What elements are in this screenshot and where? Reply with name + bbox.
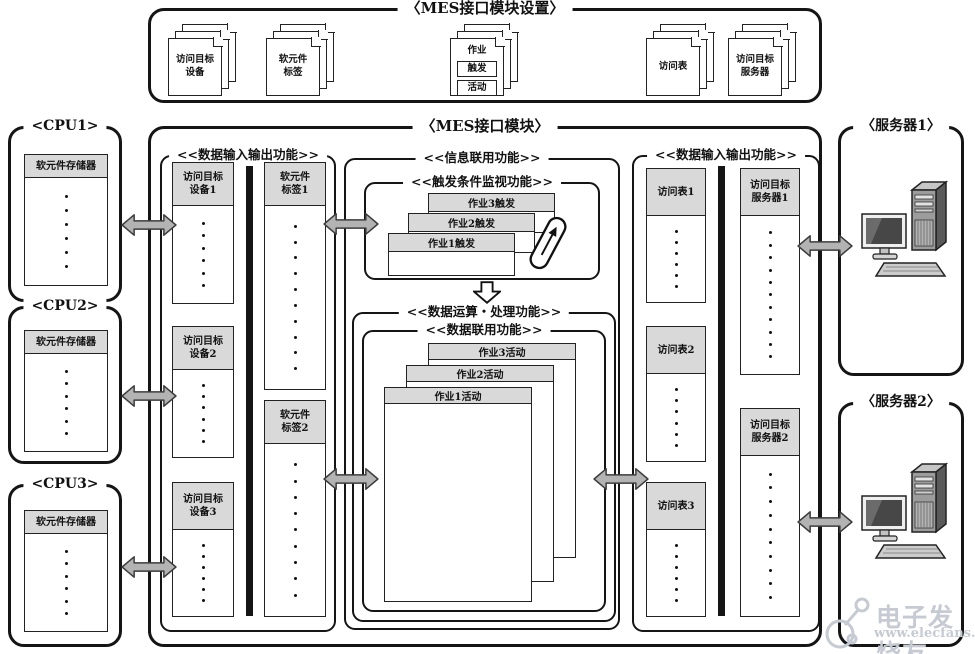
panel-dots	[265, 444, 325, 616]
cpu2-device-memory-panel: 软元件存储器	[24, 330, 108, 452]
panel-dots	[25, 534, 107, 631]
document-icon: 作业 触发 活动	[450, 38, 504, 96]
double-arrow-icon-cpu2	[120, 383, 178, 409]
document-stack-icon-access-device: 访问目标 设备	[168, 24, 236, 98]
double-arrow-icon-server1	[794, 233, 856, 259]
doc-label: 访问表	[647, 39, 699, 95]
action-card-header: 作业2活动	[406, 365, 554, 382]
panel-dots	[173, 370, 233, 457]
watermark-url: www.elecfans.com	[874, 626, 975, 641]
panel-access-device-2: 访问目标 设备2	[172, 326, 234, 458]
panel-dots	[173, 530, 233, 616]
info-linkage-title: <<信息联用功能>>	[416, 151, 549, 165]
panel-dots	[741, 216, 799, 374]
panel-access-table-3: 访问表3	[646, 482, 706, 617]
document-icon: 软元件 标签	[266, 38, 320, 96]
document-stack-icon-job: 作业 触发 活动	[450, 24, 518, 98]
panel-access-device-1: 访问目标 设备1	[172, 162, 234, 304]
cpu1-title: <CPU1>	[23, 119, 106, 134]
job-card-body	[388, 252, 515, 276]
panel-header: 访问表1	[647, 169, 705, 216]
panel-dots	[25, 178, 107, 285]
panel-header: 访问目标 设备1	[173, 163, 233, 206]
right-data-io-title: <<数据输入输出功能>>	[647, 148, 805, 162]
panel-header: 访问目标 服务器1	[741, 169, 799, 216]
document-icon: 访问目标 设备	[168, 38, 222, 96]
panel-header: 访问表2	[647, 327, 705, 374]
cpu3-title: <CPU3>	[23, 477, 106, 492]
doc-label: 访问目标 设备	[169, 39, 221, 95]
double-arrow-icon-datalink-to-io	[592, 466, 650, 492]
double-arrow-icon-io-to-datalink	[322, 466, 380, 492]
cpu3-device-memory-panel: 软元件存储器	[24, 510, 108, 632]
panel-header: 软元件存储器	[25, 331, 107, 354]
panel-device-tag-2: 软元件 标签2	[264, 400, 326, 617]
computer-icon	[856, 462, 948, 562]
double-arrow-icon-io-to-trigger	[322, 211, 380, 237]
job-card-header: 作业3触发	[428, 193, 555, 212]
job-card-header: 作业1触发	[388, 233, 515, 252]
panel-header: 软元件 标签2	[265, 401, 325, 444]
data-linkage-title: <<数据联用功能>>	[418, 323, 551, 337]
trigger-monitor-title: <<触发条件监视功能>>	[403, 175, 561, 189]
job1-trigger-card: 作业1触发	[388, 233, 515, 276]
cpu1-device-memory-panel: 软元件存储器	[24, 154, 108, 286]
panel-header: 访问目标 设备2	[173, 327, 233, 370]
left-data-io-title: <<数据输入输出功能>>	[169, 148, 327, 162]
panel-dots	[647, 530, 705, 616]
panel-header: 访问目标 设备3	[173, 483, 233, 530]
job-card-header: 作业2触发	[408, 213, 535, 232]
panel-access-table-1: 访问表1	[646, 168, 706, 303]
document-stack-icon-access-server: 访问目标 服务器	[728, 24, 796, 98]
document-icon: 访问表	[646, 38, 700, 96]
doc-job-title: 作业	[467, 45, 486, 58]
panel-dots	[25, 354, 107, 451]
doc-label: 访问目标 服务器	[729, 39, 781, 95]
doc-label: 作业 触发 活动	[451, 39, 503, 95]
panel-header: 访问目标 服务器2	[741, 409, 799, 456]
double-arrow-icon-cpu1	[120, 212, 178, 238]
document-icon: 访问目标 服务器	[728, 38, 782, 96]
mes-module-title: 〈MES接口模块〉	[413, 118, 558, 135]
panel-dots	[265, 206, 325, 389]
double-arrow-icon-server2	[794, 509, 856, 535]
action-card-body	[384, 404, 532, 602]
doc-label: 软元件 标签	[267, 39, 319, 95]
panel-access-target-server-2: 访问目标 服务器2	[740, 408, 800, 617]
mes-settings-title: 〈MES接口模块设置〉	[398, 0, 573, 17]
double-arrow-icon-cpu3	[120, 554, 178, 580]
panel-dots	[647, 216, 705, 302]
panel-access-target-server-1: 访问目标 服务器1	[740, 168, 800, 375]
diagram-page: 〈MES接口模块设置〉 访问目标 设备 软元件 标签 作业 触发 活动 访问表	[0, 0, 975, 654]
panel-access-device-3: 访问目标 设备3	[172, 482, 234, 617]
document-stack-icon-access-table: 访问表	[646, 24, 714, 98]
panel-header: 软元件存储器	[25, 155, 107, 178]
server1-title: 〈服务器1〉	[853, 119, 949, 134]
right-bus-bar	[718, 166, 725, 616]
computer-icon	[856, 180, 948, 280]
action-card-header: 作业3活动	[428, 343, 576, 360]
data-processing-title: <<数据运算・处理功能>>	[399, 305, 569, 319]
panel-dots	[741, 456, 799, 616]
down-arrow-icon	[473, 281, 501, 304]
panel-header: 软元件存储器	[25, 511, 107, 534]
doc-job-action: 活动	[457, 80, 497, 96]
action-card-header: 作业1活动	[384, 387, 532, 404]
panel-access-table-2: 访问表2	[646, 326, 706, 462]
panel-header: 软元件 标签1	[265, 163, 325, 206]
left-bus-bar	[246, 166, 253, 616]
document-stack-icon-device-tag: 软元件 标签	[266, 24, 334, 98]
job1-action-card: 作业1活动	[384, 387, 532, 602]
panel-dots	[173, 206, 233, 303]
cpu2-title: <CPU2>	[23, 299, 106, 314]
doc-job-trigger: 触发	[457, 61, 497, 77]
server2-title: 〈服务器2〉	[853, 395, 949, 410]
panel-header: 访问表3	[647, 483, 705, 530]
panel-device-tag-1: 软元件 标签1	[264, 162, 326, 390]
loop-arrow-icon	[526, 212, 570, 274]
elecfans-logo-icon	[822, 592, 878, 652]
panel-dots	[647, 374, 705, 461]
